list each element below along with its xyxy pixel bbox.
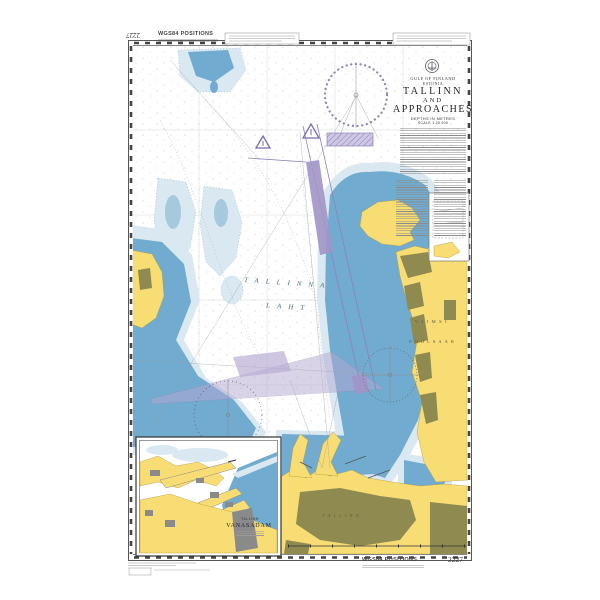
chart-number-top: 2227 (126, 31, 140, 38)
notes-column-left (396, 180, 428, 236)
notes-column-right (434, 180, 466, 236)
chart-artwork (0, 0, 600, 600)
inset-place-label: TALLINN (228, 518, 272, 521)
title-scale-note: SCALE 1:25 000 (393, 122, 473, 126)
peninsula-label-word2: POOLSAAR (398, 340, 468, 345)
chart-number-bottom: 2227 (448, 556, 463, 564)
chart-title-line3: APPROACHES (393, 105, 473, 115)
wgs84-positions-bottom: WGS84 POSITIONS (362, 558, 417, 564)
note-box-top-right (393, 33, 470, 45)
title-sea-area: GULF OF FINLAND (393, 77, 473, 81)
title-notes-paragraph (400, 128, 466, 174)
inset-vanasadam (136, 437, 281, 556)
city-label: TALLINN (322, 514, 362, 518)
chart-title-line1: TALLINN (393, 87, 473, 97)
wgs84-subnote-top (158, 39, 218, 42)
note-box-top-center (225, 33, 299, 44)
copyright-note (128, 563, 210, 575)
peninsula-label-word1: VIIMSI (405, 320, 460, 325)
wgs84-subnote-bottom (362, 565, 424, 568)
inset-name-label: VANASADAM (218, 523, 280, 529)
inset-scale-note (236, 531, 264, 536)
nautical-chart-sheet: 2227 WGS84 POSITIONS GULF OF FINLAND EST… (0, 0, 600, 600)
wgs84-positions-top: WGS84 POSITIONS (158, 32, 213, 38)
